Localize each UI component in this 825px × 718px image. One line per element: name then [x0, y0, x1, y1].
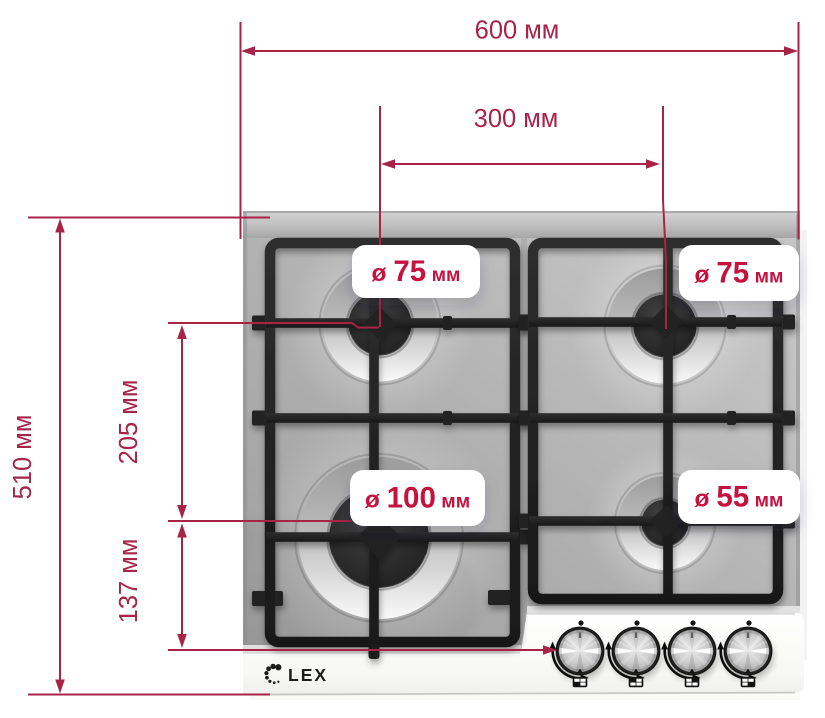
svg-text:600 мм: 600 мм: [475, 17, 560, 45]
svg-text:510 мм: 510 мм: [9, 415, 37, 500]
svg-text:LEX: LEX: [288, 665, 328, 685]
svg-text:300 мм: 300 мм: [474, 105, 559, 133]
svg-text:205 мм: 205 мм: [115, 380, 143, 465]
svg-text:137 мм: 137 мм: [115, 539, 143, 624]
